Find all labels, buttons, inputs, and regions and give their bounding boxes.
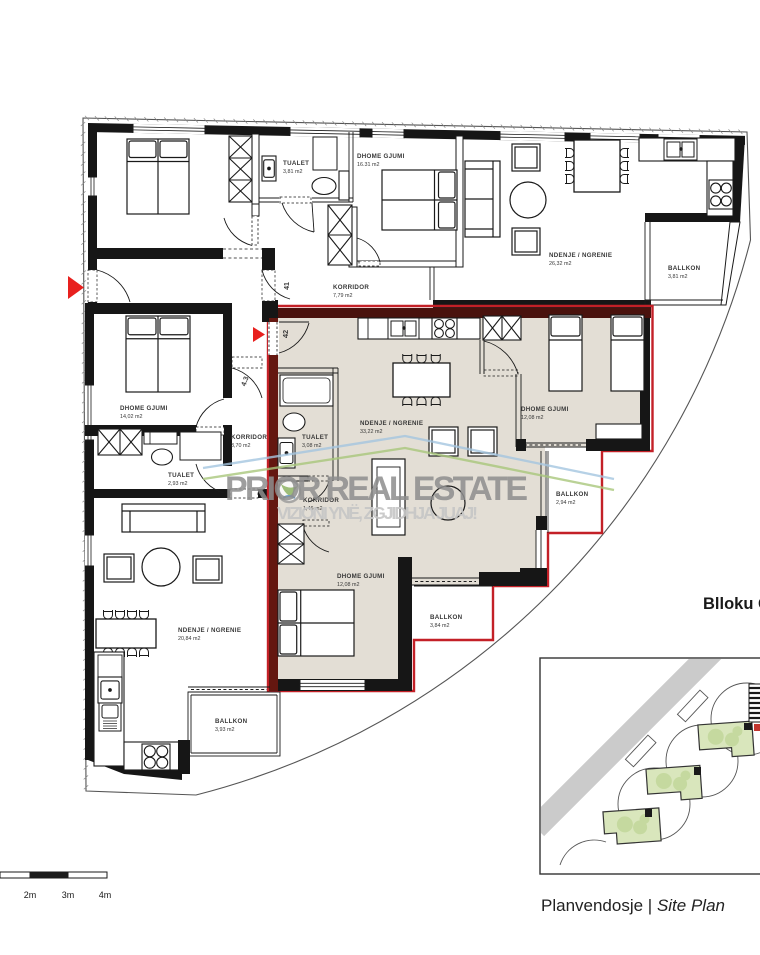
svg-text:NDENJE / NGRENIE: NDENJE / NGRENIE [360, 420, 423, 427]
svg-text:20,84 m2: 20,84 m2 [178, 636, 200, 642]
svg-text:12,08 m2: 12,08 m2 [521, 415, 543, 421]
svg-text:14,02 m2: 14,02 m2 [120, 414, 142, 420]
svg-text:33,22 m2: 33,22 m2 [360, 429, 382, 435]
svg-text:DHOME GJUMI: DHOME GJUMI [337, 573, 385, 580]
svg-text:2m: 2m [24, 890, 37, 900]
svg-text:KORRIDOR: KORRIDOR [231, 434, 267, 441]
svg-text:NDENJE / NGRENIE: NDENJE / NGRENIE [178, 627, 241, 634]
svg-text:BALLKON: BALLKON [430, 614, 463, 621]
svg-text:DHOME GJUMI: DHOME GJUMI [357, 153, 405, 160]
svg-text:3m: 3m [62, 890, 75, 900]
svg-text:2,93 m2: 2,93 m2 [168, 481, 187, 487]
svg-text:2,94 m2: 2,94 m2 [556, 500, 575, 506]
svg-text:VIZIONI YNË, ZGJIDHJA JUAJ!: VIZIONI YNË, ZGJIDHJA JUAJ! [277, 503, 478, 523]
svg-text:NDENJE / NGRENIE: NDENJE / NGRENIE [549, 252, 612, 259]
svg-text:4m: 4m [99, 890, 112, 900]
svg-text:42: 42 [281, 330, 290, 338]
svg-text:Planvendosje | Site Plan: Planvendosje | Site Plan [541, 896, 725, 915]
svg-text:DHOME GJUMI: DHOME GJUMI [120, 405, 168, 412]
svg-text:16.31 m2: 16.31 m2 [357, 162, 379, 168]
svg-text:BALLKON: BALLKON [215, 718, 248, 725]
svg-text:3,81 m2: 3,81 m2 [283, 169, 302, 175]
svg-text:3,93 m2: 3,93 m2 [215, 727, 234, 733]
svg-text:DHOME GJUMI: DHOME GJUMI [521, 406, 569, 413]
svg-text:7,79 m2: 7,79 m2 [333, 293, 352, 299]
svg-text:Blloku C: Blloku C [703, 595, 760, 613]
svg-text:KORRIDOR: KORRIDOR [333, 284, 369, 291]
svg-text:BALLKON: BALLKON [556, 491, 589, 498]
svg-text:12,08 m2: 12,08 m2 [337, 582, 359, 588]
svg-text:41: 41 [284, 282, 291, 290]
svg-text:TUALET: TUALET [302, 434, 328, 441]
svg-text:26,32 m2: 26,32 m2 [549, 261, 571, 267]
svg-text:3,81 m2: 3,81 m2 [668, 274, 687, 280]
svg-text:3,84 m2: 3,84 m2 [430, 623, 449, 629]
svg-text:3,70 m2: 3,70 m2 [231, 443, 250, 449]
svg-text:TUALET: TUALET [168, 472, 194, 479]
svg-text:BALLKON: BALLKON [668, 265, 701, 272]
svg-text:TUALET: TUALET [283, 160, 309, 167]
svg-text:3,08 m2: 3,08 m2 [302, 443, 321, 449]
